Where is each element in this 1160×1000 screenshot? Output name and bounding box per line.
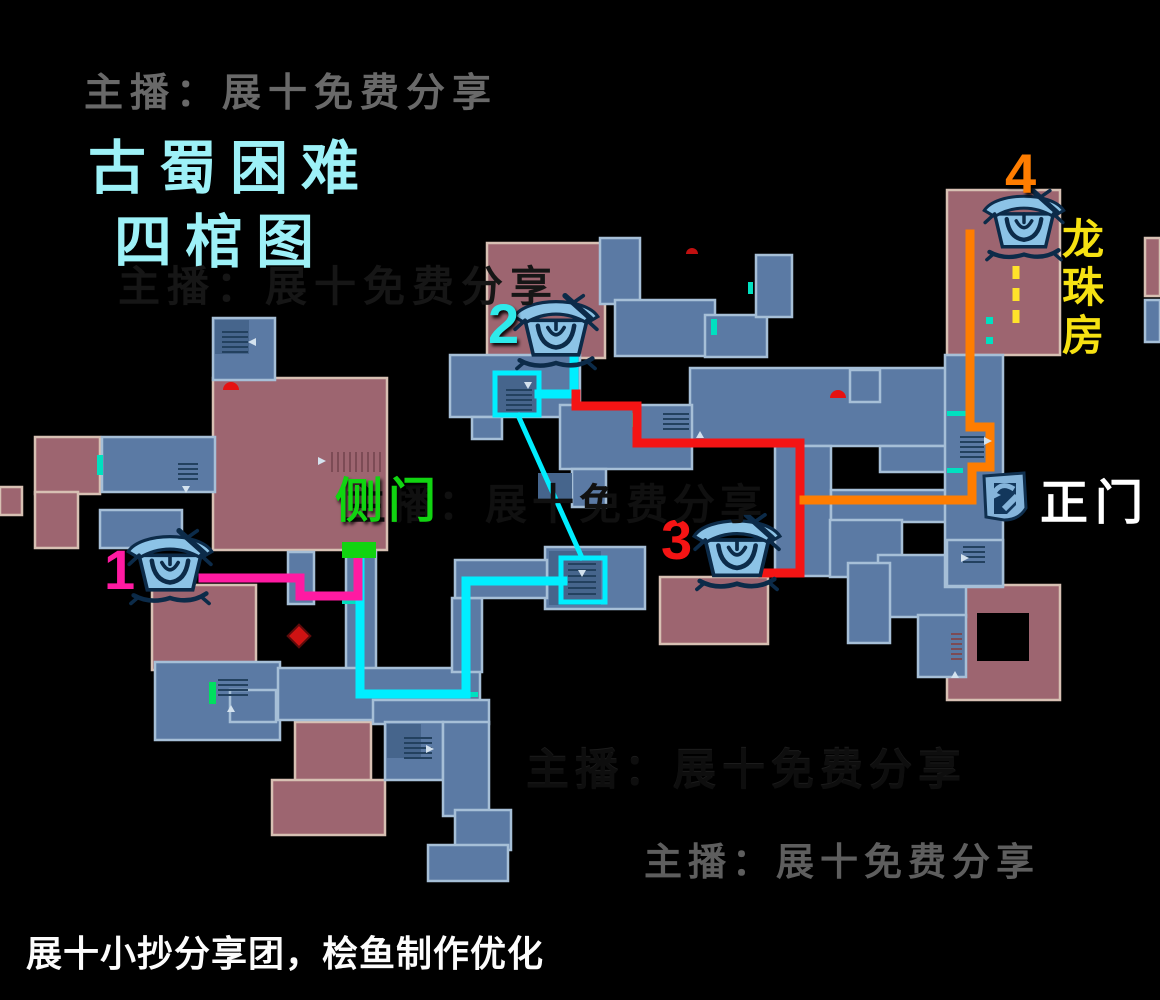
coffin-label-1: 1: [104, 542, 135, 598]
credit-line: 展十小抄分享团，桧鱼制作优化: [26, 936, 544, 972]
side-door-label: 侧门: [335, 478, 441, 526]
red-dome-marker: [686, 248, 698, 254]
main-door-label: 正门: [1040, 480, 1150, 528]
coffin-label-2: 2: [488, 296, 519, 352]
streamer-watermark-embossed-3: 主播：展十免费分享: [526, 750, 967, 793]
streamer-watermark-top: 主播：展十免费分享: [84, 74, 498, 113]
map-title-line1: 古蜀困难: [88, 140, 372, 198]
main-gate-door-icon: [984, 473, 1026, 520]
dragon-ball-room-label: 龙珠房: [1062, 216, 1112, 360]
streamer-watermark-bottom: 主播：展十免费分享: [644, 844, 1040, 882]
coffin-label-4: 4: [1005, 146, 1036, 202]
map-guide-image: 主播：展十免费分享 古蜀困难 四棺图 主播：展十免费分享 主播：展十免费分享 主…: [0, 0, 1160, 1000]
side-door-marker: [342, 542, 376, 558]
red-diamond-marker: [288, 625, 311, 648]
